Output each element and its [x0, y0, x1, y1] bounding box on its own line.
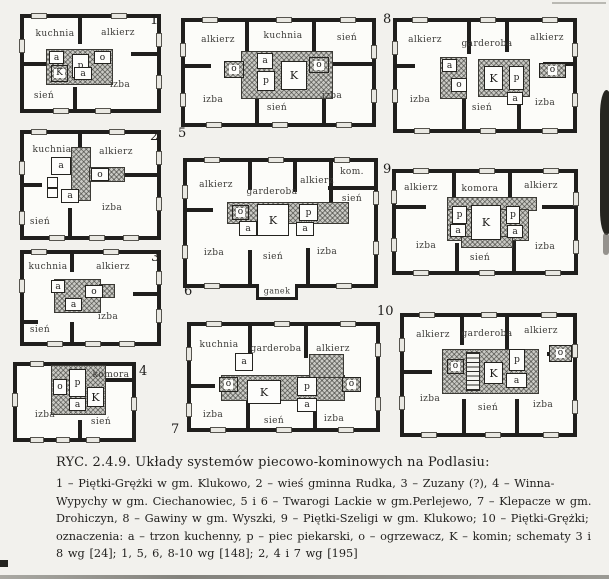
- wall: [70, 254, 74, 272]
- room-label: alkierz: [530, 33, 564, 43]
- plan-number: 10: [377, 304, 394, 319]
- plan-number: 9: [383, 162, 391, 177]
- wall: [404, 370, 432, 374]
- window-gap: [203, 18, 217, 22]
- unit-a-kitchen-range: a: [50, 52, 63, 63]
- window-gap: [90, 236, 104, 240]
- unit-K-chimney: K: [485, 363, 502, 383]
- unit-o-heater: o: [86, 286, 102, 297]
- window-gap: [376, 398, 380, 410]
- scan-artifact-bottom-band: [0, 575, 609, 579]
- unit-a-kitchen-range: a: [52, 281, 64, 292]
- unit-p-bread-oven: p: [298, 378, 316, 395]
- room-label: alkierz: [199, 180, 233, 190]
- window-gap: [544, 169, 558, 173]
- window-gap: [482, 313, 496, 317]
- window-gap: [486, 433, 500, 437]
- caption-line: oznaczenia: a – trzon kuchenny, p – piec…: [56, 528, 573, 546]
- plan-number: 6: [184, 284, 192, 299]
- window-gap: [20, 162, 24, 174]
- room-label: izba: [102, 203, 122, 213]
- unit-a-kitchen-range: a: [66, 299, 81, 310]
- wall: [328, 186, 374, 190]
- plan-number: 4: [139, 364, 147, 379]
- window-gap: [207, 123, 221, 127]
- room-label: sień: [30, 217, 50, 227]
- window-gap: [31, 362, 43, 366]
- room-label: alkierz: [404, 183, 438, 193]
- window-gap: [335, 158, 349, 162]
- room-label: alkierz: [524, 181, 558, 191]
- room-label: alkierz: [101, 28, 135, 38]
- room-label: alkierz: [201, 35, 235, 45]
- unit-p-bread-oven: p: [258, 72, 274, 90]
- window-gap: [157, 198, 161, 210]
- room-label: izba: [35, 410, 55, 420]
- window-gap: [110, 130, 124, 134]
- window-gap: [480, 169, 494, 173]
- floor-plan-3: a o a kuchnia alkierz izba sień: [20, 250, 161, 346]
- window-gap: [207, 322, 221, 326]
- window-gap: [269, 158, 283, 162]
- room-label: alkierz: [96, 262, 130, 272]
- wall: [462, 399, 466, 433]
- unit-letter: o: [224, 380, 233, 389]
- room-label: sień: [91, 417, 111, 427]
- window-gap: [181, 44, 185, 56]
- unit-letter: o: [229, 65, 238, 74]
- wall: [24, 320, 38, 324]
- unit-a-kitchen-range: a: [62, 190, 78, 202]
- unit-o-heater: o: [54, 380, 66, 394]
- room-label: kom.: [340, 167, 364, 177]
- unit-p-bread-oven: p: [300, 205, 317, 220]
- stove-unit: [48, 178, 57, 187]
- unit-K-chimney: K: [258, 205, 288, 235]
- unit-a-kitchen-range: a: [75, 68, 91, 79]
- unit-K-chimney: K: [472, 206, 500, 239]
- window-gap: [57, 438, 69, 442]
- room-label: izba: [410, 95, 430, 105]
- wall: [248, 162, 252, 190]
- unit-letter: o: [314, 61, 323, 70]
- room-label: sień: [267, 103, 287, 113]
- floor-plan-7: a o K p a o kuchnia garderoba alkierz iz…: [187, 322, 380, 432]
- unit-o-heater: o: [448, 360, 463, 373]
- room-label: izba: [533, 400, 553, 410]
- unit-o-heater: o: [343, 378, 360, 391]
- unit-K-chimney: K: [88, 388, 103, 406]
- wall: [78, 18, 82, 44]
- room-label: garderoba: [462, 39, 513, 49]
- window-gap: [32, 14, 46, 18]
- wall: [131, 52, 157, 56]
- window-gap: [544, 433, 558, 437]
- floor-plan-10: o K p a o alkierz garderoba alkierz izba…: [400, 313, 577, 437]
- window-gap: [392, 191, 396, 203]
- window-gap: [414, 271, 428, 275]
- window-gap: [339, 428, 353, 432]
- floor-plan-5: o a p K o alkierz kuchnia sień izba sień…: [181, 18, 376, 127]
- window-gap: [376, 344, 380, 356]
- window-gap: [420, 313, 434, 317]
- flue-ladder-element: [467, 353, 479, 390]
- room-label: kuchnia: [36, 29, 75, 39]
- window-gap: [414, 169, 428, 173]
- room-label: ganek: [264, 287, 291, 296]
- window-gap: [157, 152, 161, 164]
- wall: [248, 250, 252, 284]
- wall: [515, 399, 519, 433]
- room-label: izba: [420, 394, 440, 404]
- floor-plan-6: o K p a a alkierz garderoba alkierz kom.…: [183, 158, 378, 288]
- wall: [187, 208, 213, 212]
- unit-o-heater: o: [310, 58, 328, 72]
- room-label: sień: [470, 253, 490, 263]
- window-gap: [20, 40, 24, 52]
- room-label: alkierz: [300, 176, 334, 186]
- window-gap: [273, 123, 287, 127]
- porch-ganek: ganek: [256, 284, 298, 300]
- window-gap: [393, 90, 397, 102]
- unit-letter: o: [548, 66, 557, 75]
- unit-p-bread-oven: p: [510, 350, 524, 370]
- wall: [452, 173, 456, 197]
- caption-title-line: RYC. 2.4.9. Układy systemów piecowo-komi…: [56, 455, 573, 470]
- room-label: kuchnia: [264, 31, 303, 41]
- wall: [68, 208, 72, 236]
- window-gap: [374, 192, 378, 204]
- unit-o-heater: o: [233, 206, 248, 219]
- unit-K-chimney: K: [282, 62, 306, 89]
- unit-o-heater: o: [452, 79, 466, 91]
- wall: [462, 99, 466, 129]
- unit-o-heater: o: [95, 52, 110, 63]
- unit-p-bread-oven: p: [507, 207, 519, 223]
- plan-number: 5: [178, 126, 186, 141]
- unit-a-kitchen-range: a: [258, 54, 272, 68]
- window-gap: [481, 129, 495, 133]
- caption-line: Wypychy w gm. Ciechanowiec, 5 i 6 – Twar…: [56, 493, 573, 511]
- window-gap: [546, 271, 560, 275]
- window-gap: [205, 158, 219, 162]
- window-gap: [205, 284, 219, 288]
- unit-a-kitchen-range: a: [297, 223, 313, 235]
- unit-a-kitchen-range: a: [508, 226, 522, 237]
- window-gap: [277, 428, 291, 432]
- unit-letter: o: [451, 362, 460, 371]
- window-gap: [87, 438, 99, 442]
- room-label: kuchnia: [29, 262, 68, 272]
- window-gap: [50, 236, 64, 240]
- room-label: alkierz: [316, 344, 350, 354]
- window-gap: [31, 438, 43, 442]
- room-label: izba: [110, 80, 130, 90]
- window-gap: [374, 242, 378, 254]
- room-label: izba: [535, 98, 555, 108]
- room-label: sień: [337, 33, 357, 43]
- room-label: izba: [535, 242, 555, 252]
- window-gap: [275, 322, 289, 326]
- unit-a-kitchen-range: a: [240, 222, 256, 235]
- room-label: garderoba: [462, 329, 513, 339]
- unit-letter: o: [556, 349, 565, 358]
- window-gap: [120, 342, 134, 346]
- window-gap: [543, 18, 557, 22]
- unit-a-kitchen-range: a: [451, 225, 465, 236]
- window-gap: [341, 322, 355, 326]
- window-gap: [13, 394, 17, 406]
- unit-o-heater: o: [225, 62, 243, 77]
- caption-line: 1 – Piętki-Grężki w gm. Klukowo, 2 – wie…: [56, 475, 573, 493]
- window-gap: [124, 236, 138, 240]
- scan-artifact-top-line: [552, 2, 606, 4]
- wall: [328, 62, 372, 66]
- wall: [245, 22, 249, 54]
- unit-letter: o: [347, 380, 356, 389]
- unit-a-kitchen-range: a: [443, 60, 456, 71]
- unit-a-kitchen-range: a: [236, 354, 252, 370]
- wall: [304, 326, 308, 358]
- caption-label: RYC. 2.4.9.: [56, 455, 131, 470]
- floor-plan-1: a p o a K kuchnia alkierz izba sień: [20, 14, 161, 113]
- wall: [512, 241, 516, 271]
- window-gap: [20, 280, 24, 292]
- unit-p-bread-oven: p: [453, 207, 466, 223]
- window-gap: [573, 94, 577, 106]
- window-gap: [372, 46, 376, 58]
- wall: [133, 292, 157, 296]
- unit-a-kitchen-range: a: [298, 399, 316, 411]
- caption-line: Drohiczyn, 8 – Gawiny w gm. Wyszki, 9 – …: [56, 510, 573, 528]
- floor-plan-8: a o K p a o alkierz garderoba alkierz iz…: [393, 18, 577, 133]
- window-gap: [112, 14, 126, 18]
- window-gap: [480, 271, 494, 275]
- room-label: izba: [317, 247, 337, 257]
- window-gap: [573, 345, 577, 357]
- room-label: sień: [342, 194, 362, 204]
- window-gap: [372, 90, 376, 102]
- window-gap: [183, 246, 187, 258]
- stove-hatch-mass: [100, 285, 114, 297]
- window-gap: [96, 109, 110, 113]
- wall: [508, 173, 512, 197]
- window-gap: [132, 398, 136, 410]
- room-label: garderoba: [247, 187, 298, 197]
- unit-o-heater: o: [220, 378, 237, 391]
- room-label: sień: [472, 103, 492, 113]
- plan-number: 8: [383, 12, 391, 27]
- caption-line: 8 wg [24]; 1, 5, 6, 8-10 wg [148]; 2, 4 …: [56, 545, 573, 563]
- room-label: komora: [462, 184, 499, 194]
- room-label: sień: [478, 403, 498, 413]
- scan-artifact-right-streak: [600, 90, 609, 235]
- window-gap: [543, 129, 557, 133]
- window-gap: [157, 76, 161, 88]
- room-label: sień: [30, 325, 50, 335]
- caption-title: Układy systemów piecowo-kominowych na Po…: [135, 455, 489, 470]
- stove-unit: [48, 189, 57, 197]
- window-gap: [48, 342, 62, 346]
- window-gap: [32, 250, 46, 254]
- floor-plan-2: a o a kuchnia alkierz izba sień: [20, 130, 161, 240]
- window-gap: [415, 129, 429, 133]
- window-gap: [86, 342, 100, 346]
- unit-p-bread-oven: p: [70, 370, 85, 396]
- window-gap: [574, 241, 578, 253]
- room-label: garderoba: [251, 344, 302, 354]
- unit-a-kitchen-range: a: [507, 374, 526, 387]
- plan-number: 3: [151, 250, 159, 265]
- window-gap: [187, 348, 191, 360]
- room-label: sień: [264, 416, 284, 426]
- window-gap: [32, 130, 46, 134]
- stove-hatch-mass: [310, 355, 343, 377]
- wall: [185, 64, 211, 68]
- window-gap: [183, 186, 187, 198]
- window-gap: [573, 401, 577, 413]
- wall: [191, 384, 215, 388]
- plan-number: 1: [150, 13, 158, 28]
- wall: [542, 205, 574, 209]
- unit-a-kitchen-range: a: [70, 399, 85, 410]
- room-label: izba: [204, 248, 224, 258]
- unit-letter: o: [236, 208, 245, 217]
- window-gap: [413, 18, 427, 22]
- window-gap: [181, 94, 185, 106]
- wall: [70, 322, 74, 342]
- room-label: izba: [203, 410, 223, 420]
- scan-artifact-left-dash: [0, 560, 8, 567]
- unit-o-heater: o: [540, 64, 565, 77]
- room-label: sień: [34, 91, 54, 101]
- unit-o-heater: o: [550, 346, 571, 361]
- unit-K-chimney: K: [248, 381, 280, 403]
- window-gap: [392, 239, 396, 251]
- window-gap: [341, 18, 355, 22]
- room-label: izba: [324, 414, 344, 424]
- window-gap: [393, 42, 397, 54]
- window-gap: [187, 404, 191, 416]
- room-label: izba: [203, 95, 223, 105]
- room-label: kuchnia: [33, 145, 72, 155]
- window-gap: [54, 109, 68, 113]
- unit-K-chimney: K: [52, 66, 67, 81]
- wall: [396, 205, 426, 209]
- scanned-figure-page: a p o a K kuchnia alkierz izba sień 1 a …: [0, 0, 609, 579]
- window-gap: [422, 433, 436, 437]
- figure-caption: RYC. 2.4.9. Układy systemów piecowo-komi…: [56, 455, 573, 563]
- window-gap: [481, 18, 495, 22]
- plan-number: 2: [150, 129, 158, 144]
- unit-letter: K: [54, 69, 65, 78]
- unit-p-bread-oven: p: [510, 67, 523, 89]
- unit-a-kitchen-range: a: [52, 158, 70, 174]
- wall: [455, 243, 459, 271]
- window-gap: [157, 34, 161, 46]
- window-gap: [337, 123, 351, 127]
- unit-K-chimney: K: [485, 67, 502, 89]
- room-label: izba: [416, 241, 436, 251]
- wall: [24, 183, 42, 187]
- window-gap: [211, 428, 225, 432]
- room-label: izba: [322, 91, 342, 101]
- wall: [467, 22, 471, 54]
- window-gap: [573, 44, 577, 56]
- wall: [306, 248, 310, 284]
- room-label: sień: [263, 252, 283, 262]
- unit-a-kitchen-range: a: [508, 93, 522, 104]
- window-gap: [277, 18, 291, 22]
- room-label: izba: [98, 312, 118, 322]
- unit-o-heater: o: [92, 169, 108, 180]
- room-label: komora: [93, 370, 130, 380]
- window-gap: [104, 250, 118, 254]
- floor-plan-4: o p a K komora izba sień: [13, 362, 136, 442]
- room-label: alkierz: [524, 326, 558, 336]
- wall: [73, 87, 77, 109]
- window-gap: [542, 313, 556, 317]
- window-gap: [400, 339, 404, 351]
- wall: [78, 420, 82, 438]
- window-gap: [574, 193, 578, 205]
- room-label: kuchnia: [200, 340, 239, 350]
- window-gap: [400, 397, 404, 409]
- window-gap: [20, 212, 24, 224]
- room-label: alkierz: [416, 330, 450, 340]
- stove-hatch-mass: [222, 376, 344, 400]
- scan-artifact-right-tail: [603, 233, 609, 255]
- floor-plan-9: p K p a a alkierz komora alkierz izba si…: [392, 169, 578, 275]
- room-label: alkierz: [408, 35, 442, 45]
- plan-number: 7: [171, 422, 179, 437]
- wall: [397, 64, 415, 68]
- window-gap: [157, 310, 161, 322]
- window-gap: [337, 284, 351, 288]
- room-label: alkierz: [99, 147, 133, 157]
- window-gap: [157, 272, 161, 284]
